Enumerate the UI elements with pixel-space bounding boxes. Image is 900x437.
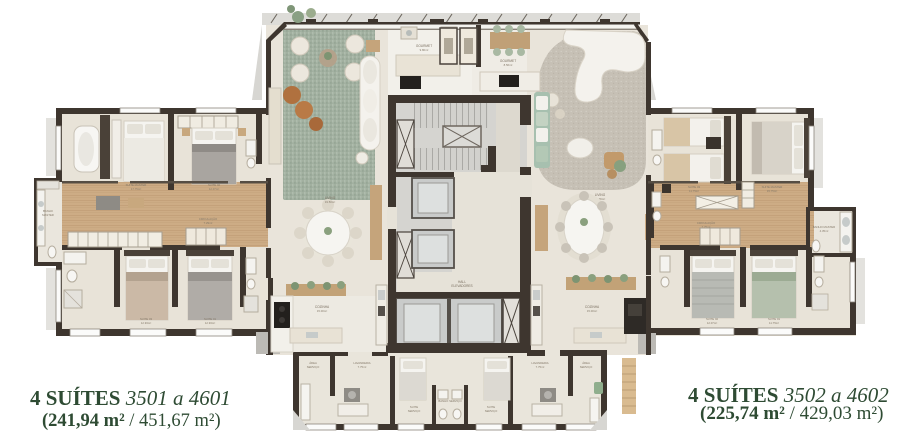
svg-text:MASTER: MASTER bbox=[42, 213, 54, 217]
svg-text:7.29m²: 7.29m² bbox=[204, 221, 213, 225]
svg-text:15.00m²: 15.00m² bbox=[317, 309, 327, 313]
svg-text:7.75m²: 7.75m² bbox=[536, 365, 545, 369]
svg-text:4.35m²: 4.35m² bbox=[820, 229, 829, 233]
svg-text:19.50m²: 19.50m² bbox=[325, 200, 335, 204]
svg-text:11.75m²: 11.75m² bbox=[689, 189, 699, 193]
svg-text:SERVIÇO: SERVIÇO bbox=[485, 409, 498, 413]
svg-text:SERVIÇO: SERVIÇO bbox=[307, 365, 320, 369]
svg-text:(225,74 m² / 429,03 m²): (225,74 m² / 429,03 m²) bbox=[700, 403, 883, 424]
svg-text:12.07m²: 12.07m² bbox=[209, 187, 219, 191]
svg-text:17.75m²: 17.75m² bbox=[131, 187, 141, 191]
svg-text:8.56m²: 8.56m² bbox=[504, 63, 513, 67]
svg-text:12.93m²: 12.93m² bbox=[141, 321, 151, 325]
svg-text:15.75m²: 15.75m² bbox=[767, 189, 777, 193]
svg-text:4 SUÍTES 3501 a 4601: 4 SUÍTES 3501 a 4601 bbox=[30, 386, 231, 410]
svg-text:11.75m²: 11.75m² bbox=[769, 321, 779, 325]
svg-text:SERVIÇO: SERVIÇO bbox=[408, 409, 421, 413]
svg-text:BANHO SERVIÇO: BANHO SERVIÇO bbox=[438, 399, 462, 403]
svg-text:9.80m²: 9.80m² bbox=[420, 48, 429, 52]
svg-text:12.93m²: 12.93m² bbox=[205, 321, 215, 325]
svg-text:12.07m²: 12.07m² bbox=[707, 321, 717, 325]
svg-text:ELEVADORES: ELEVADORES bbox=[451, 284, 472, 288]
svg-text:(241,94 m² / 451,67 m²): (241,94 m² / 451,67 m²) bbox=[42, 411, 221, 431]
svg-text:15.00m²: 15.00m² bbox=[587, 309, 597, 313]
svg-text:7.75m²: 7.75m² bbox=[358, 365, 367, 369]
svg-text:SERVIÇO: SERVIÇO bbox=[580, 365, 593, 369]
